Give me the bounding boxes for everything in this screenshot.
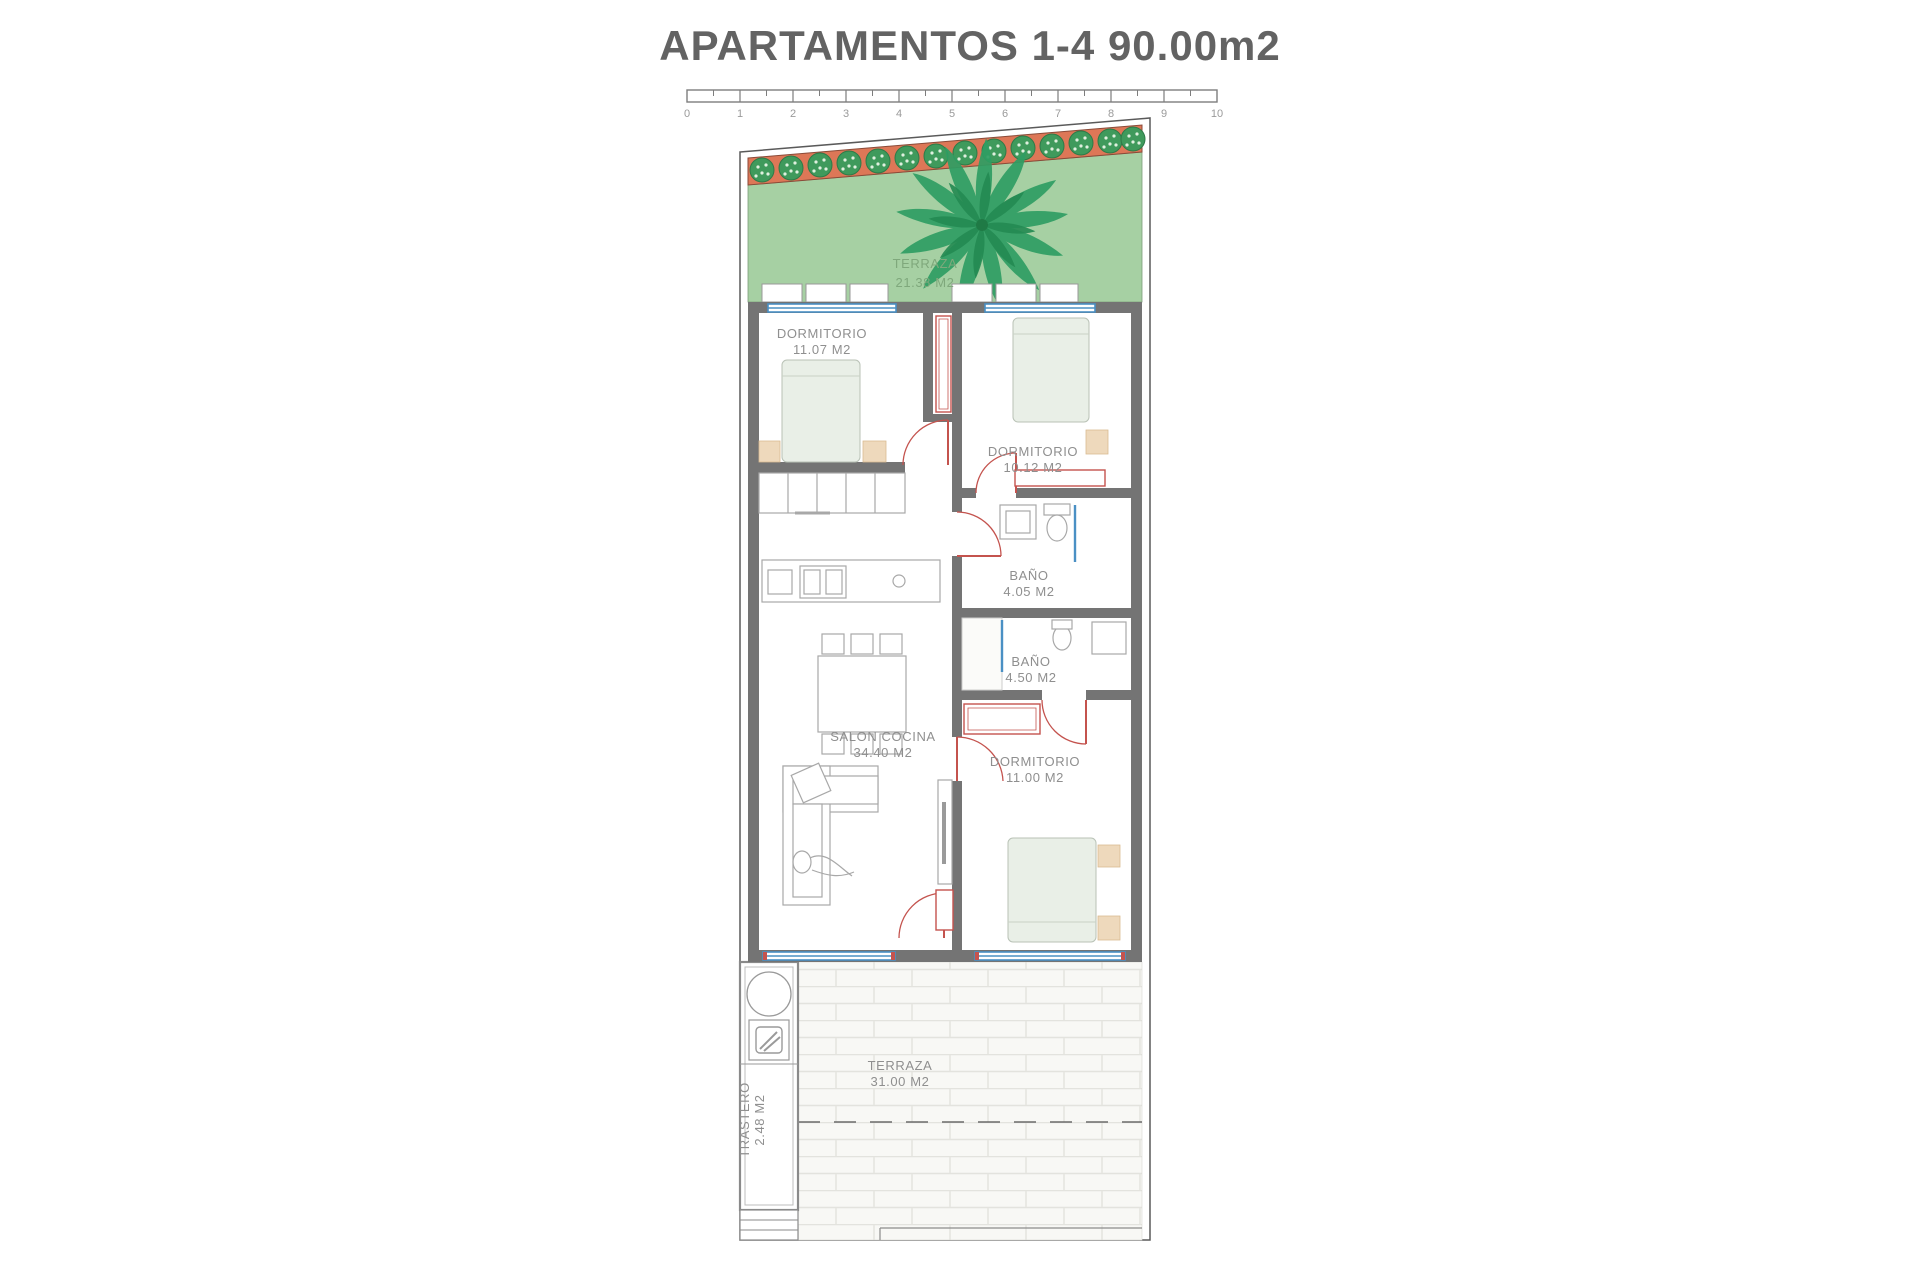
nightstand <box>1098 916 1120 940</box>
svg-text:11.07 M2: 11.07 M2 <box>793 342 851 357</box>
scale-tick: 10 <box>1211 108 1223 120</box>
window-bedroom3 <box>975 952 1125 960</box>
window-bedroom1 <box>768 304 896 312</box>
room-label-bano-1: BAÑO 4.05 M2 <box>1003 568 1054 599</box>
scale-tick: 8 <box>1108 108 1114 120</box>
svg-text:10.12 M2: 10.12 M2 <box>1003 460 1062 475</box>
scale-tick: 2 <box>790 108 796 120</box>
sink-faucet <box>893 575 905 587</box>
nightstand <box>863 441 886 462</box>
cabinet <box>936 890 953 930</box>
room-label-dormitorio-1: DORMITORIO 11.07 M2 <box>777 326 867 357</box>
boiler <box>747 972 791 1016</box>
scale-tick: 4 <box>896 108 902 120</box>
floor-plan-page: APARTAMENTOS 1-4 90.00m2 0 1 <box>0 0 1920 1280</box>
svg-text:11.00 M2: 11.00 M2 <box>1006 770 1064 785</box>
svg-text:2.48 M2: 2.48 M2 <box>752 1094 767 1145</box>
svg-text:4.50 M2: 4.50 M2 <box>1005 670 1056 685</box>
wardrobe <box>964 704 1040 734</box>
svg-text:BAÑO: BAÑO <box>1011 654 1050 669</box>
trastero: TRASTERO 2.48 M2 <box>737 962 798 1240</box>
svg-text:21.38 M2: 21.38 M2 <box>895 275 954 290</box>
tv-unit <box>936 780 953 930</box>
svg-text:DORMITORIO: DORMITORIO <box>988 444 1078 459</box>
room-label-salon: SALON COCINA 34.40 M2 <box>830 729 935 760</box>
disclaimer-notes: *Estas medidas son indicativas y pueden … <box>683 1242 1453 1280</box>
window-salon <box>763 952 895 960</box>
washing-machine-icon <box>749 1020 789 1060</box>
nightstand <box>1098 845 1120 867</box>
svg-text:SALON COCINA: SALON COCINA <box>830 729 935 744</box>
window-bedroom2 <box>985 304 1095 312</box>
nightstand <box>759 441 780 462</box>
scale-tick: 9 <box>1161 108 1167 120</box>
svg-text:31.00 M2: 31.00 M2 <box>870 1074 929 1089</box>
door-bano2 <box>1042 700 1086 744</box>
scale-tick: 6 <box>1002 108 1008 120</box>
svg-text:TRASTERO: TRASTERO <box>737 1082 752 1158</box>
door-bano1 <box>957 512 1001 556</box>
stairs <box>740 1210 798 1240</box>
kitchen-counter <box>759 473 905 513</box>
bottom-terrace: TERRAZA 31.00 M2 <box>798 962 1142 1240</box>
sofa <box>783 763 878 905</box>
svg-text:DORMITORIO: DORMITORIO <box>777 326 867 341</box>
shower-tray <box>962 618 1002 690</box>
svg-text:TERRAZA: TERRAZA <box>868 1058 933 1073</box>
bed <box>1008 838 1096 942</box>
scale-bar: 0 1 2 3 4 5 6 7 8 9 10 <box>684 90 1223 120</box>
wardrobe <box>936 316 951 412</box>
svg-text:4.05 M2: 4.05 M2 <box>1003 584 1054 599</box>
svg-text:BAÑO: BAÑO <box>1009 568 1048 583</box>
top-terrace: TERRAZA 21.38 M2 <box>748 125 1145 311</box>
scale-tick: 3 <box>843 108 849 120</box>
sink <box>1092 622 1126 654</box>
floor-plan-drawing: 0 1 2 3 4 5 6 7 8 9 10 <box>0 0 1920 1280</box>
room-label-terraza-bottom: TERRAZA 31.00 M2 <box>868 1058 933 1089</box>
kitchen-island <box>762 560 940 602</box>
tv <box>942 802 946 864</box>
bano1-fixtures <box>1000 504 1075 562</box>
scale-tick: 1 <box>737 108 743 120</box>
toilet <box>1044 504 1070 515</box>
svg-text:34.40 M2: 34.40 M2 <box>853 745 912 760</box>
nightstand <box>1086 430 1108 454</box>
terrace-tiles <box>798 962 1142 1240</box>
scale-tick: 0 <box>684 108 690 120</box>
room-label-bano-2: BAÑO 4.50 M2 <box>1005 654 1056 685</box>
scale-tick: 5 <box>949 108 955 120</box>
scale-tick: 7 <box>1055 108 1061 120</box>
door-bedroom1 <box>903 420 948 465</box>
svg-text:DORMITORIO: DORMITORIO <box>990 754 1080 769</box>
svg-text:TERRAZA: TERRAZA <box>893 256 958 271</box>
bedroom3-furniture <box>964 704 1120 942</box>
bed <box>782 360 860 462</box>
